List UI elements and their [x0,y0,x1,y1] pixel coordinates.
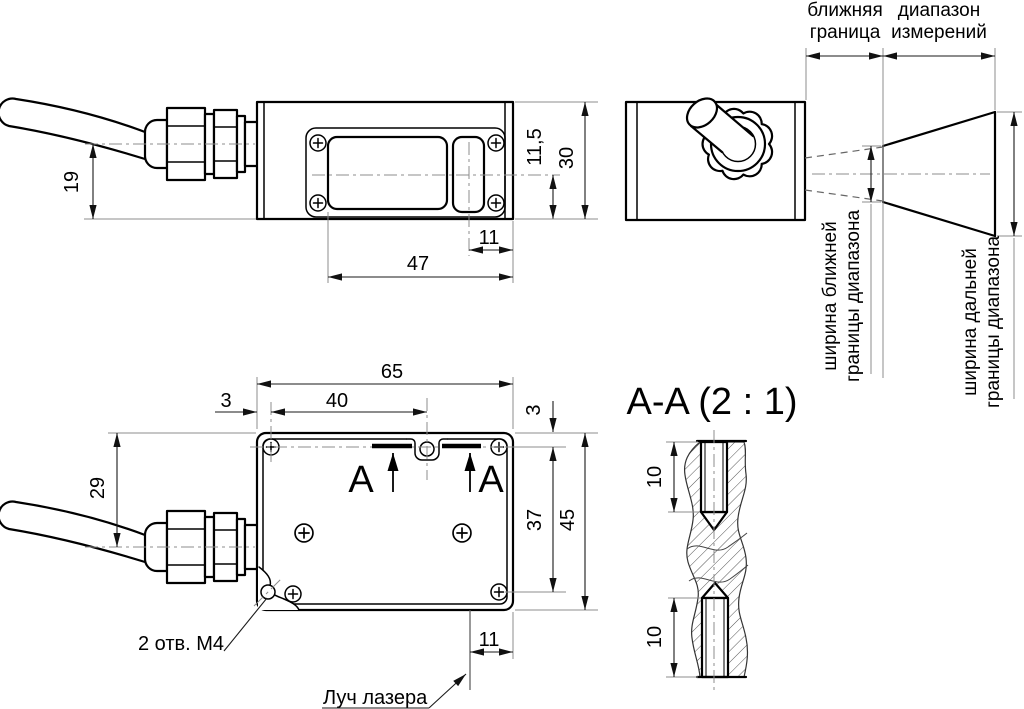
screw-icon [295,524,313,542]
far-width-label-2: границы диапазона [983,236,1004,408]
laser-beam-note: Луч лазера [322,674,466,709]
dim-3-right: 3 [505,401,598,447]
threaded-hole-bottom [702,583,728,677]
dim-65: 65 [257,361,513,429]
dim-label: 30 [556,147,578,169]
dim-label: 47 [407,253,429,275]
dim-label: 19 [61,171,83,193]
dim-label: 40 [326,390,348,412]
dim-label: 3 [220,390,231,412]
section-letter-right: A [478,459,504,501]
range-label-1: диапазон [898,0,980,21]
laser-beam-cone [805,112,995,236]
dim-label: 10 [644,626,666,648]
dim-near-width: ширина ближней границы диапазона [820,146,881,382]
section-letter-left: A [348,459,374,501]
screw-icon [310,135,326,151]
top-view: A A 65 3 40 3 29 37 [0,361,598,709]
side-view: 19 11,5 30 11 47 [0,99,598,283]
screw-icon [285,586,301,602]
dim-far-width: ширина дальней границы диапазона [960,112,1022,408]
holes-note-label: 2 отв. М4 [138,633,224,655]
cable [0,99,145,159]
dim-label: 65 [381,361,403,383]
dim-label: 10 [644,466,666,488]
dim-label: 3 [523,404,545,415]
section-view: A-A (2 : 1) 10 10 [626,381,797,690]
screw-icon [310,195,326,211]
receiver-window [328,137,447,209]
sensor-body-top [257,433,513,610]
dim-11-5: 11,5 [524,128,553,219]
far-width-label-1: ширина дальней [960,248,981,396]
near-boundary-label-2: граница [810,22,881,43]
screw-icon [491,584,507,600]
dim-label: 11 [479,227,500,249]
near-width-label-2: границы диапазона [843,210,864,382]
dim-3-40: 3 40 [215,390,427,412]
near-width-label-1: ширина ближней [820,221,841,371]
dim-label: 45 [557,509,579,531]
screw-icon [488,135,504,151]
range-label-2: измерений [891,22,987,43]
dim-label: 11,5 [524,128,546,165]
screw-icon [488,195,504,211]
dim-label: 29 [87,477,109,499]
cable [0,502,145,562]
dim-11-bottom: 11 [470,612,513,659]
near-boundary-label-1: ближняя [807,0,883,21]
rear-view: ближняя граница диапазон измерений ширин… [626,0,1022,408]
dim-11-side: 11 [469,221,513,283]
dim-label: 11 [479,629,500,651]
technical-drawing: 19 11,5 30 11 47 [0,0,1024,709]
laser-beam-label: Луч лазера [323,687,428,709]
screw-icon [453,524,471,542]
holes-note: 2 отв. М4 [138,598,267,655]
dim-label: 37 [524,509,546,531]
technical-drawing-page: 19 11,5 30 11 47 [0,0,1024,709]
section-title: A-A (2 : 1) [626,381,797,423]
